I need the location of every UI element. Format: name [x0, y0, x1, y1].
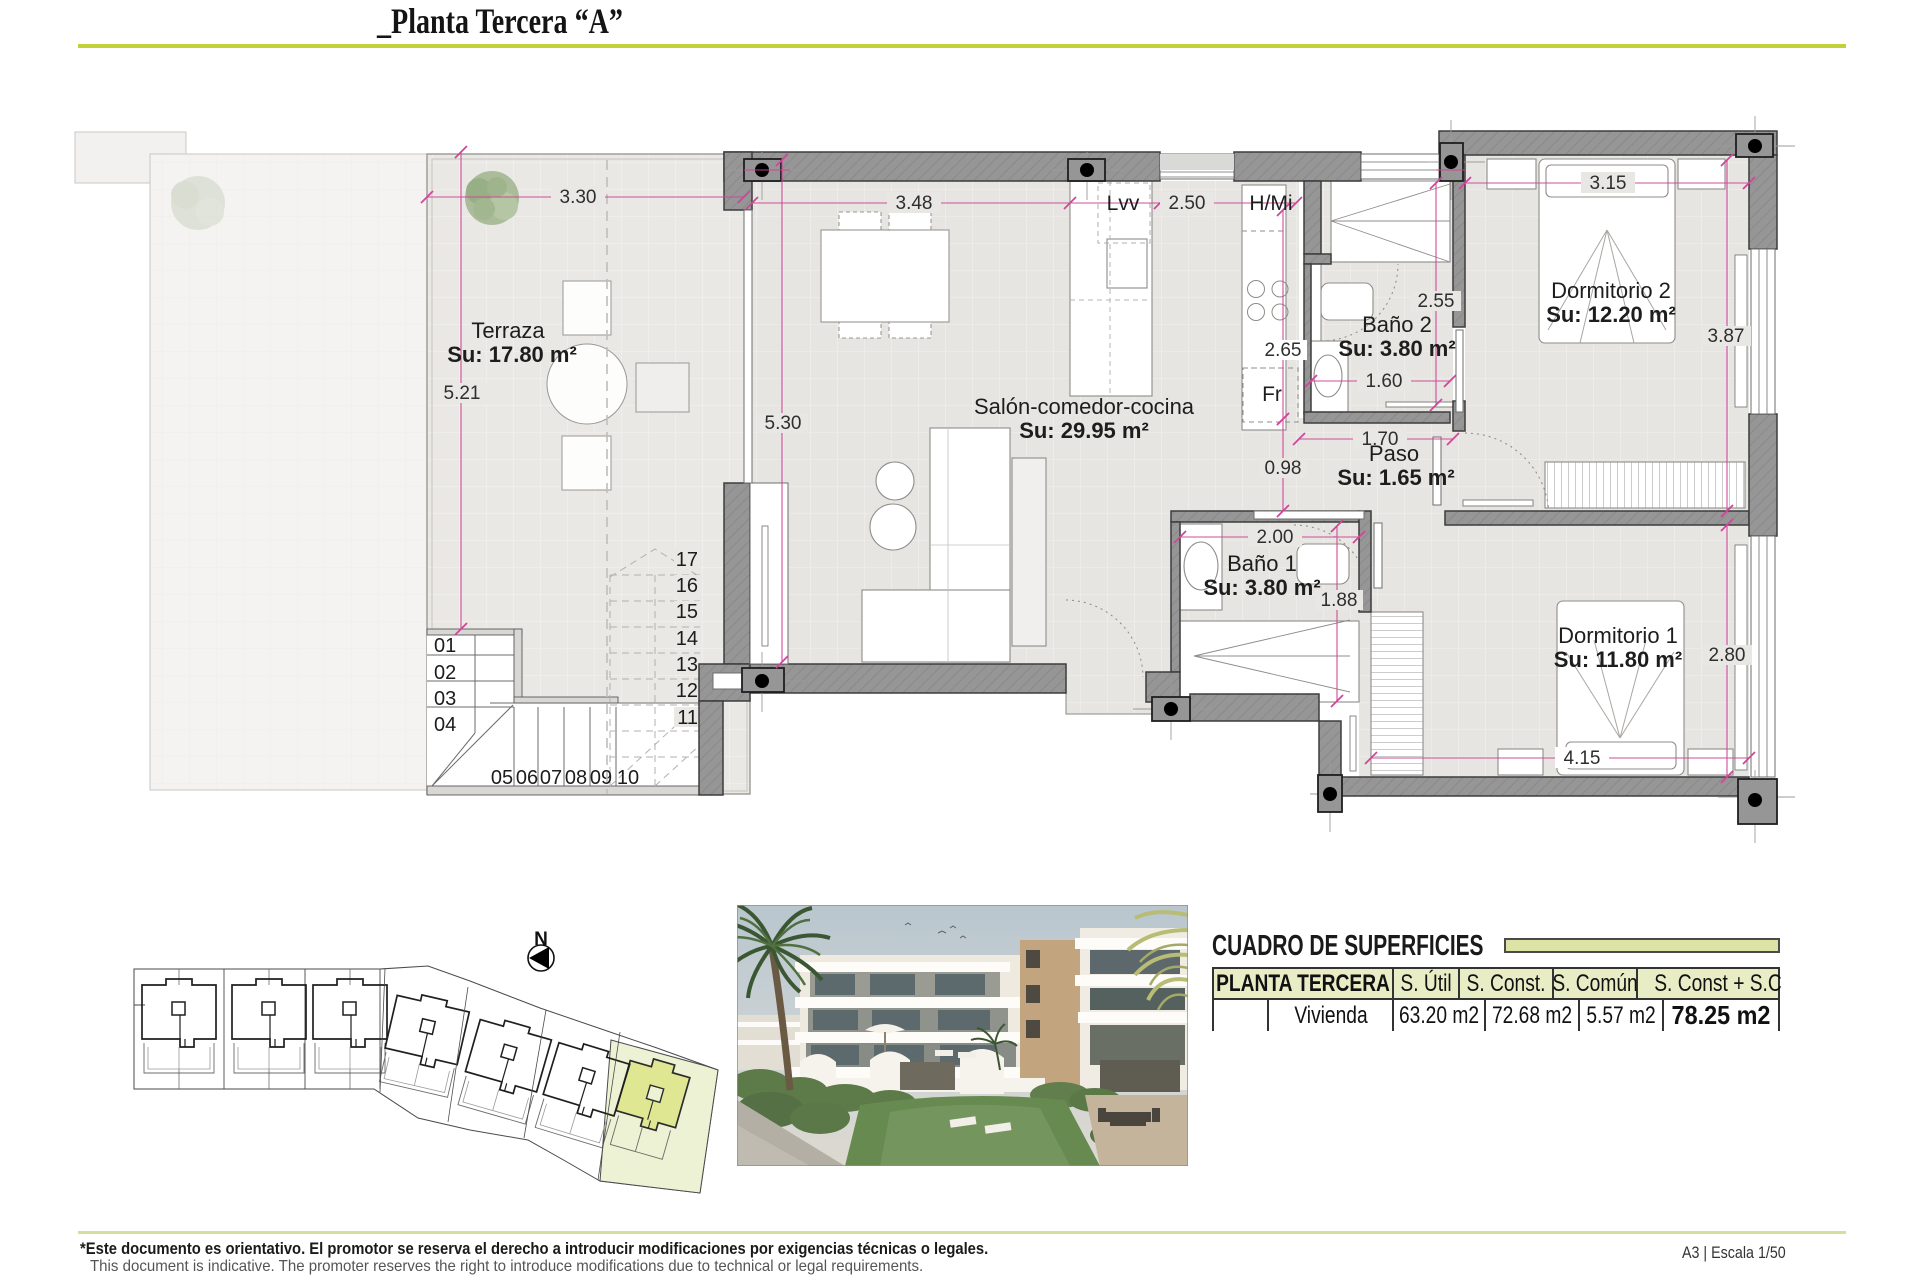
svg-text:02: 02 [434, 662, 456, 684]
svg-text:04: 04 [434, 714, 456, 736]
svg-text:2.55: 2.55 [1418, 291, 1455, 312]
svg-text:Fr: Fr [1262, 383, 1282, 406]
svg-text:10: 10 [617, 767, 639, 789]
svg-text:2.65: 2.65 [1265, 340, 1302, 361]
svg-text:14: 14 [676, 628, 698, 650]
svg-text:3.15: 3.15 [1590, 173, 1627, 194]
svg-text:07: 07 [540, 767, 562, 789]
svg-text:05: 05 [491, 767, 513, 789]
svg-text:Su: 1.65 m²: Su: 1.65 m² [1337, 465, 1454, 490]
svg-text:Su: 29.95 m²: Su: 29.95 m² [1019, 418, 1149, 443]
svg-text:3.87: 3.87 [1708, 326, 1745, 347]
svg-text:2.80: 2.80 [1709, 645, 1746, 666]
svg-text:06: 06 [516, 767, 538, 789]
svg-text:3.30: 3.30 [560, 187, 597, 208]
svg-text:17: 17 [676, 549, 698, 571]
svg-text:2.00: 2.00 [1257, 527, 1294, 548]
svg-text:Baño 1: Baño 1 [1227, 551, 1297, 576]
svg-text:Su: 3.80 m²: Su: 3.80 m² [1203, 575, 1320, 600]
svg-text:Su: 3.80 m²: Su: 3.80 m² [1338, 336, 1455, 361]
svg-text:Paso: Paso [1369, 441, 1419, 466]
svg-text:16: 16 [676, 575, 698, 597]
svg-text:5.30: 5.30 [765, 413, 802, 434]
svg-text:01: 01 [434, 635, 456, 657]
svg-text:Lvv: Lvv [1107, 192, 1140, 215]
svg-text:03: 03 [434, 688, 456, 710]
svg-text:09: 09 [590, 767, 612, 789]
svg-text:4.15: 4.15 [1564, 748, 1601, 769]
svg-text:Dormitorio 2: Dormitorio 2 [1551, 278, 1671, 303]
svg-text:Baño 2: Baño 2 [1362, 312, 1432, 337]
svg-text:Salón-comedor-cocina: Salón-comedor-cocina [974, 394, 1195, 419]
svg-text:13: 13 [676, 654, 698, 676]
svg-text:2.50: 2.50 [1169, 193, 1206, 214]
svg-text:Su: 17.80 m²: Su: 17.80 m² [447, 342, 577, 367]
svg-text:Su: 12.20 m²: Su: 12.20 m² [1546, 302, 1676, 327]
svg-text:5.21: 5.21 [444, 383, 481, 404]
svg-text:1.88: 1.88 [1321, 590, 1358, 611]
svg-text:Dormitorio 1: Dormitorio 1 [1558, 623, 1678, 648]
svg-text:1.60: 1.60 [1366, 371, 1403, 392]
svg-text:11: 11 [677, 707, 698, 729]
svg-text:15: 15 [676, 601, 698, 623]
svg-text:3.48: 3.48 [896, 193, 933, 214]
svg-text:Su: 11.80 m²: Su: 11.80 m² [1554, 647, 1682, 672]
svg-text:0.98: 0.98 [1265, 458, 1302, 479]
svg-text:Terraza: Terraza [471, 318, 545, 343]
svg-text:08: 08 [565, 767, 587, 789]
svg-text:12: 12 [676, 680, 698, 702]
svg-text:H/Mi: H/Mi [1249, 192, 1292, 215]
